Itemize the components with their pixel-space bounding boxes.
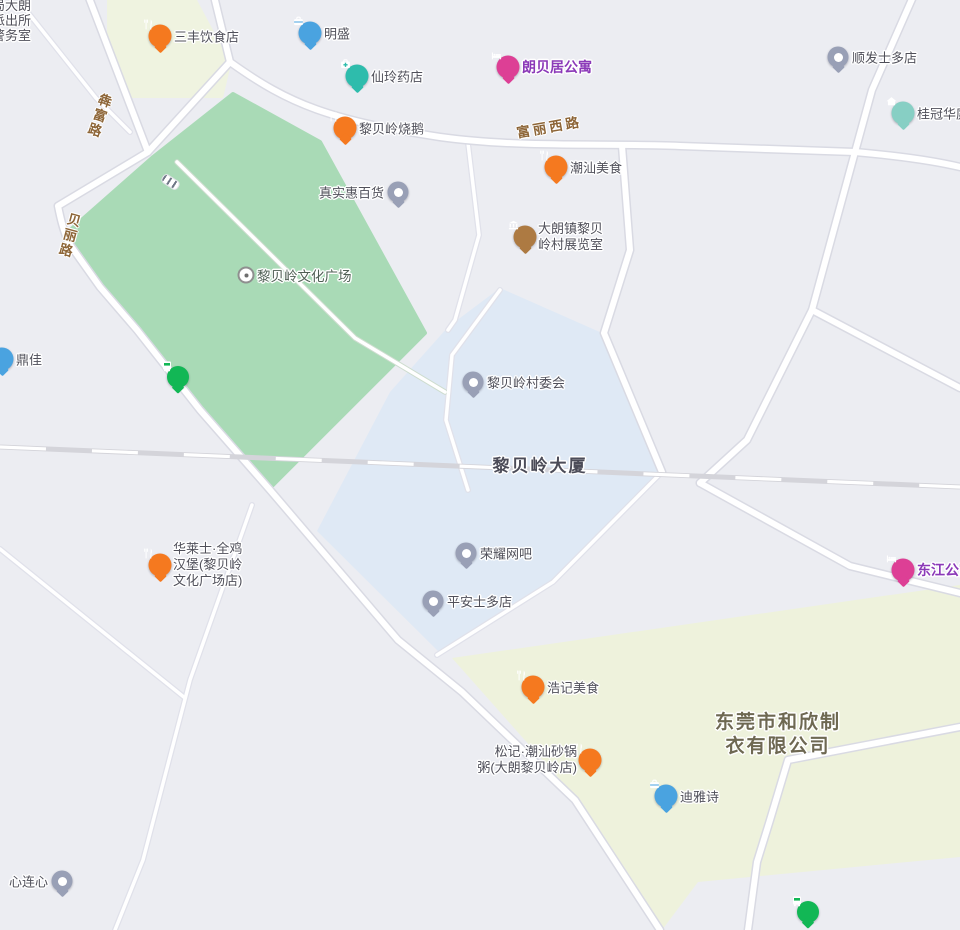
poi-label: 真实惠百货 xyxy=(319,183,384,202)
poi-label: 华莱士·全鸡汉堡(黎贝岭文化广场店) xyxy=(173,541,242,589)
restaurant-pin-icon xyxy=(149,554,172,577)
poi-label: 荣耀网吧 xyxy=(480,544,532,563)
poi-label: 黎贝岭文化广场 xyxy=(257,265,352,285)
poi-label: 潮汕美食 xyxy=(570,158,622,177)
bus-pin-icon xyxy=(167,366,189,388)
building-label: 黎贝岭大厦 xyxy=(493,452,588,477)
poi-label: 明盛 xyxy=(324,24,350,43)
restaurant-pin-icon xyxy=(334,117,357,140)
bed-pin-icon xyxy=(497,56,520,79)
generic-pin-icon xyxy=(52,871,73,892)
restaurant-pin-icon xyxy=(522,676,545,699)
restaurant-pin-icon xyxy=(545,156,568,179)
factory-label: 东莞市和欣制 衣有限公司 xyxy=(715,711,841,759)
generic-pin-icon xyxy=(388,182,409,203)
map-canvas[interactable]: 犇富路 贝丽路 富丽西路 局大朗 派出所 警务室 黎贝岭大厦 东莞市和欣制 衣有… xyxy=(0,0,960,930)
poi-label: 心连心 xyxy=(9,872,48,891)
bus-pin-icon xyxy=(797,901,819,923)
generic-pin-icon xyxy=(456,543,477,564)
poi-label: 顺发士多店 xyxy=(852,48,917,67)
poi-label: 大朗镇黎贝岭村展览室 xyxy=(538,221,603,253)
museum-pin-icon xyxy=(514,226,537,249)
pharmacy-pin-icon xyxy=(346,65,369,88)
scenic-dot-icon xyxy=(238,267,255,284)
poi-label: 桂冠华庭 xyxy=(917,104,960,123)
poi-label: 朗贝居公寓 xyxy=(522,57,592,77)
house-pin-icon xyxy=(892,102,915,125)
generic-pin-icon xyxy=(463,372,484,393)
map-layers xyxy=(0,0,960,930)
restaurant-pin-icon xyxy=(149,25,172,48)
generic-pin-icon xyxy=(828,47,849,68)
bed-pin-icon xyxy=(892,559,915,582)
generic-pin-icon xyxy=(423,591,444,612)
poi-label: 迪雅诗 xyxy=(680,787,719,806)
poi-label: 鼎佳 xyxy=(16,350,42,369)
poi-label: 松记·潮汕砂锅粥(大朗黎贝岭店) xyxy=(477,744,577,776)
police-station-label: 局大朗 派出所 警务室 xyxy=(0,0,31,43)
restaurant-pin-icon xyxy=(579,749,602,772)
briefcase-pin-icon xyxy=(299,22,322,45)
poi-label: 仙玲药店 xyxy=(371,67,423,86)
poi-label: 黎贝岭村委会 xyxy=(487,373,565,392)
poi-label: 黎贝岭烧鹅 xyxy=(359,119,424,138)
poi-label: 三丰饮食店 xyxy=(174,27,239,46)
briefcase-pin-icon xyxy=(655,785,678,808)
poi-label: 浩记美食 xyxy=(547,678,599,697)
poi-label: 平安士多店 xyxy=(447,592,512,611)
poi-label: 东江公寓 xyxy=(917,560,960,580)
